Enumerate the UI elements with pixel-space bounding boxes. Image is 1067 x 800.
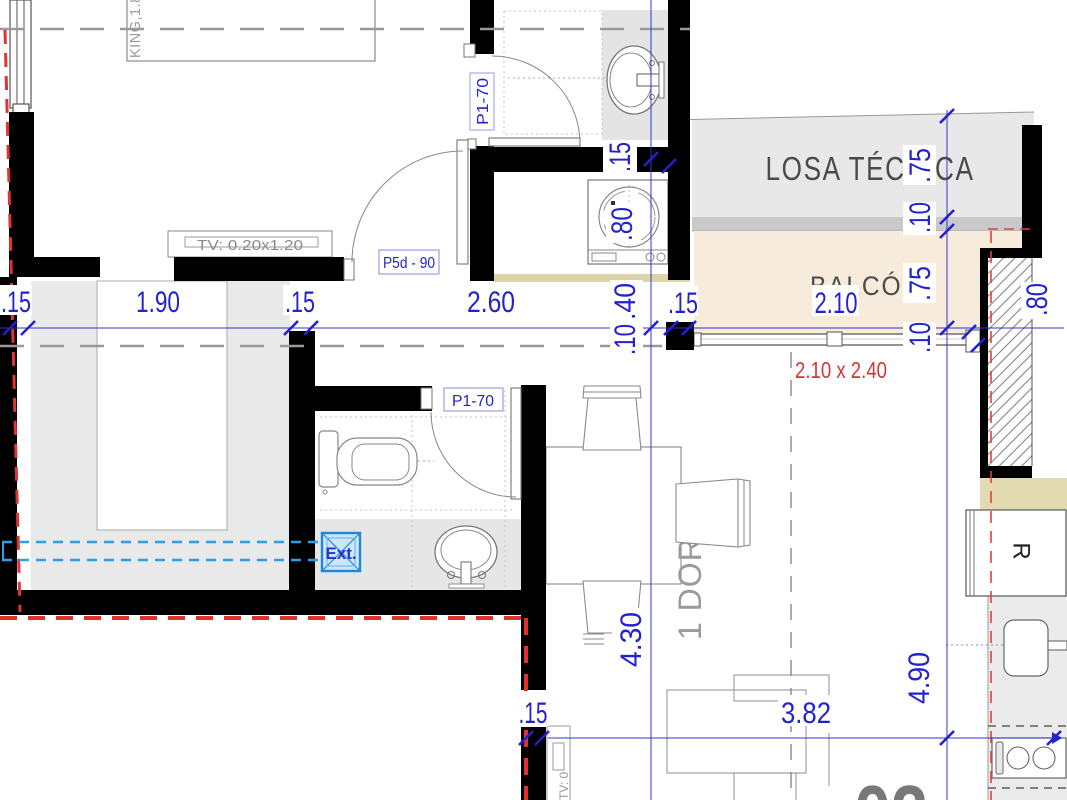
svg-text:.10: .10 xyxy=(904,322,937,353)
svg-text:.80: .80 xyxy=(606,207,639,241)
svg-text:4.30: 4.30 xyxy=(615,612,648,667)
svg-text:TV: 0: TV: 0 xyxy=(557,771,571,800)
svg-text:.15: .15 xyxy=(604,142,637,172)
svg-text:R: R xyxy=(1008,542,1035,559)
svg-text:Ext.: Ext. xyxy=(325,544,356,563)
svg-text:1.90: 1.90 xyxy=(136,286,180,319)
svg-text:.15: .15 xyxy=(519,697,548,730)
svg-text:2.10: 2.10 xyxy=(815,287,858,320)
svg-text:.15: .15 xyxy=(668,287,698,320)
svg-text:.75: .75 xyxy=(904,148,937,183)
svg-text:3.82: 3.82 xyxy=(781,697,831,730)
svg-text:.10: .10 xyxy=(609,324,642,355)
svg-text:LOSA TÉCNICA: LOSA TÉCNICA xyxy=(766,150,975,187)
svg-text:P1-70: P1-70 xyxy=(452,393,494,410)
svg-text:.15: .15 xyxy=(1,286,31,319)
svg-text:.80: .80 xyxy=(1021,283,1054,316)
svg-text:.10: .10 xyxy=(904,202,937,233)
svg-text:.75: .75 xyxy=(904,266,937,301)
svg-text:2.60: 2.60 xyxy=(467,286,515,319)
svg-text:4.90: 4.90 xyxy=(903,652,936,704)
svg-text:TV: 0.20x1.20: TV: 0.20x1.20 xyxy=(197,237,303,254)
svg-text:P5d - 90: P5d - 90 xyxy=(383,255,435,272)
svg-text:.40: .40 xyxy=(609,283,642,320)
svg-text:P1-70: P1-70 xyxy=(475,78,492,125)
svg-text:02: 02 xyxy=(854,769,928,800)
svg-text:.15: .15 xyxy=(285,286,315,319)
svg-text:2.10 x 2.40: 2.10 x 2.40 xyxy=(795,357,887,383)
